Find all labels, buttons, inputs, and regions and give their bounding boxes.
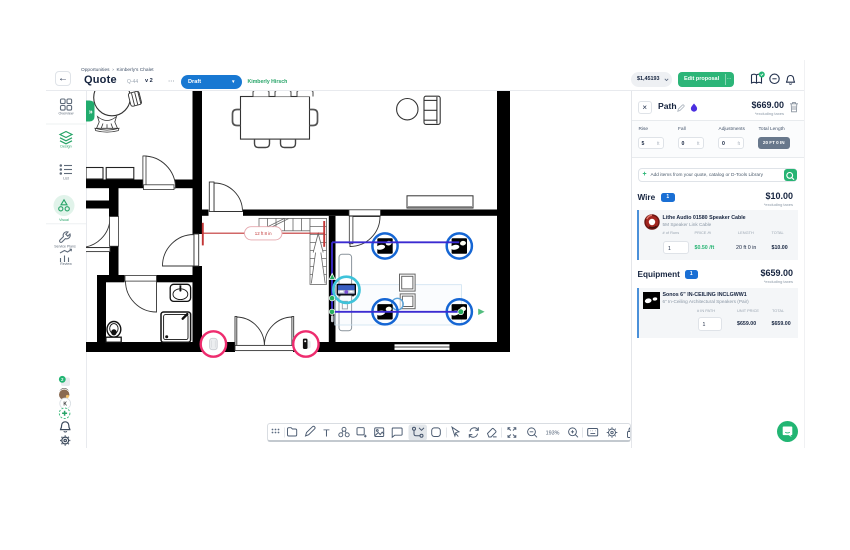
svg-text:Visual: Visual (59, 218, 69, 222)
svg-text:List: List (63, 177, 69, 181)
svg-text:Review: Review (60, 262, 72, 266)
svg-text:K: K (63, 402, 67, 408)
svg-text:Design: Design (60, 145, 71, 149)
svg-text:T: T (323, 427, 330, 439)
svg-text:12 ft 8 in: 12 ft 8 in (255, 231, 272, 236)
svg-text:»: » (89, 109, 93, 116)
svg-text:193%: 193% (545, 431, 559, 437)
svg-text:Service Plans: Service Plans (54, 244, 76, 248)
svg-text:Overview: Overview (59, 112, 74, 116)
